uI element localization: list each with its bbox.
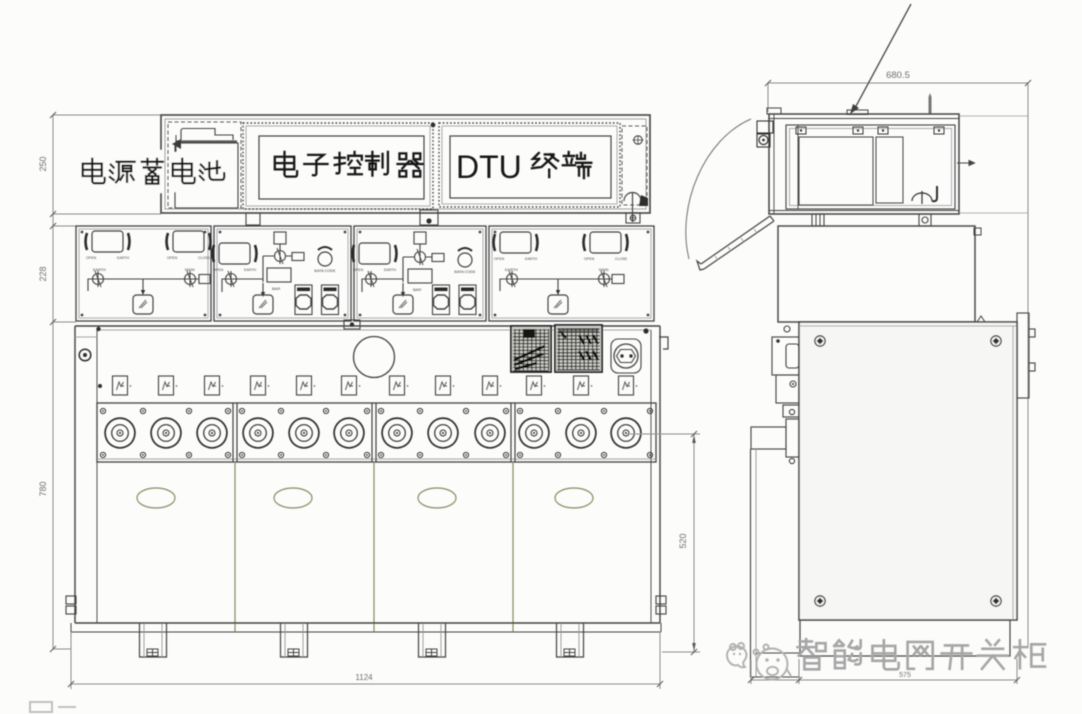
- svg-text:228: 228: [38, 266, 48, 281]
- svg-text:OPEN: OPEN: [353, 268, 364, 272]
- svg-text:OPEN: OPEN: [167, 256, 178, 260]
- svg-text:EARTH: EARTH: [384, 268, 397, 272]
- svg-text:EARTH: EARTH: [525, 257, 538, 261]
- svg-text:EARTH: EARTH: [244, 268, 257, 272]
- svg-text:680.5: 680.5: [886, 70, 910, 81]
- svg-text:BAR: BAR: [413, 287, 421, 292]
- svg-text:BATA CODE: BATA CODE: [314, 269, 336, 273]
- svg-text:BAR: BAR: [272, 286, 280, 291]
- svg-text:520: 520: [678, 533, 688, 548]
- svg-text:OPEN: OPEN: [213, 268, 224, 272]
- svg-text:CLOSE: CLOSE: [198, 256, 211, 260]
- svg-text:OPEN: OPEN: [584, 257, 595, 261]
- svg-text:EARTH: EARTH: [117, 256, 130, 260]
- svg-text:1124: 1124: [355, 673, 373, 682]
- svg-text:575: 575: [899, 672, 911, 679]
- svg-text:BATA CODE: BATA CODE: [454, 270, 476, 274]
- svg-text:CLOSE: CLOSE: [615, 257, 628, 261]
- svg-text:DTU: DTU: [456, 149, 522, 185]
- svg-text:OPEN: OPEN: [86, 256, 97, 260]
- svg-text:250: 250: [38, 156, 48, 171]
- svg-text:780: 780: [38, 481, 48, 496]
- svg-text:OPEN: OPEN: [494, 257, 505, 261]
